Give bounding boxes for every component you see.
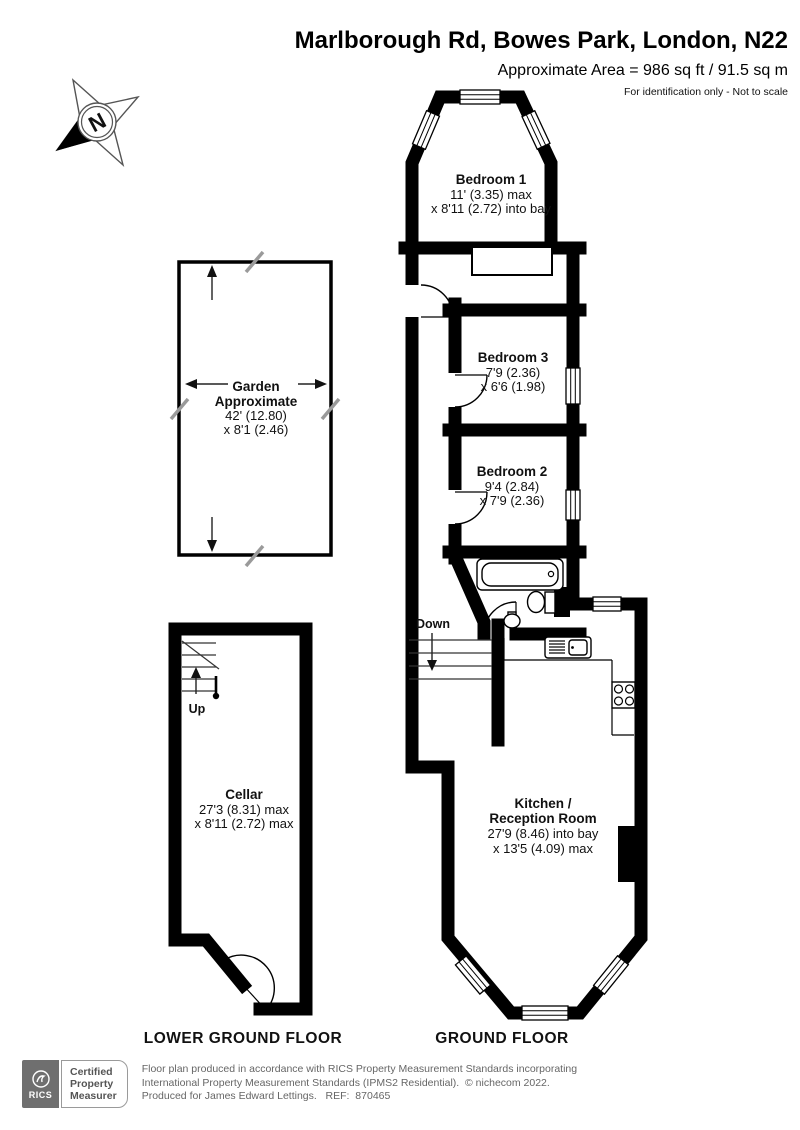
room-label-bedroom3-name: Bedroom 3 [478,350,549,365]
stairs-up-label: Up [189,702,206,716]
cellar-label-name: Cellar [225,787,263,802]
cellar-plan: Up Cellar 27'3 (8.31) max x 8'11 (2.72) … [175,629,306,1010]
window-icon [566,490,580,520]
hob-icon [612,682,635,708]
window-icon [522,111,550,150]
ground-floor-label: GROUND FLOOR [435,1030,568,1047]
kitchen-sink-icon [545,637,591,658]
window-icon [522,1006,568,1020]
garden-label-approx: Approximate [215,394,298,409]
room-label-bedroom3-dim1: 7'9 (2.36) [486,365,541,380]
room-label-bedroom1-name: Bedroom 1 [456,172,527,187]
alcove-recess [472,247,552,275]
room-label-kitchen-dim2: x 13'5 (4.09) max [493,841,594,856]
room-label-bedroom1-dim2: x 8'11 (2.72) into bay [431,201,552,216]
rics-certification-label: Certified Property Measurer [61,1060,128,1108]
garden-label-dim2: x 8'1 (2.46) [224,422,289,437]
room-label-kitchen-name2: Reception Room [489,811,596,826]
rics-badge: RICS Certified Property Measurer [22,1060,128,1108]
garden-plan: Garden Approximate 42' (12.80) x 8'1 (2.… [171,252,339,566]
footer-line2: International Property Measurement Stand… [142,1077,577,1091]
floorplan-drawing: N Garden Approx [0,0,800,1130]
footer-line1: Floor plan produced in accordance with R… [142,1063,577,1077]
garden-label-dim1: 42' (12.80) [225,408,287,423]
stairs-down-icon [409,633,492,679]
footer-disclaimer: Floor plan produced in accordance with R… [142,1060,577,1104]
room-label-kitchen-name1: Kitchen / [514,796,571,811]
stairs-up-icon [182,641,219,699]
room-label-bedroom2-dim2: x 7'9 (2.36) [480,493,545,508]
compass-rose-icon: N [57,80,138,165]
rics-cert-line3: Measurer [70,1090,117,1102]
chimney-breast [618,826,640,882]
rics-cert-line1: Certified [70,1066,117,1078]
room-label-bedroom2-name: Bedroom 2 [477,464,548,479]
rics-lion-icon [31,1069,51,1089]
cellar-label-dim2: x 8'11 (2.72) max [194,816,294,831]
window-icon [413,111,440,150]
toilet-icon [528,592,556,614]
window-icon [593,597,621,611]
rics-cert-line2: Property [70,1078,117,1090]
bathtub-icon [477,559,563,590]
room-label-kitchen-dim1: 27'9 (8.46) into bay [488,826,599,841]
rics-logo-icon: RICS [22,1060,59,1108]
garden-label-name: Garden [232,379,279,394]
floorplan-page: Marlborough Rd, Bowes Park, London, N22 … [0,0,800,1130]
stairs-down-label: Down [416,617,450,631]
window-icon [460,90,500,104]
duct-block [554,587,570,617]
basin-icon [504,612,520,628]
window-icon [566,368,580,404]
rics-org-label: RICS [29,1090,53,1100]
room-label-bedroom2-dim1: 9'4 (2.84) [485,479,540,494]
window-icon [594,956,629,994]
footer: RICS Certified Property Measurer Floor p… [22,1060,577,1108]
ground-floor-plan: Down [405,90,642,1020]
lower-ground-floor-label: LOWER GROUND FLOOR [144,1030,342,1047]
footer-line3: Produced for James Edward Lettings. REF:… [142,1090,577,1104]
room-label-bedroom3-dim2: x 6'6 (1.98) [481,379,546,394]
room-label-bedroom1-dim1: 11' (3.35) max [450,187,532,202]
cellar-label-dim1: 27'3 (8.31) max [199,802,289,817]
